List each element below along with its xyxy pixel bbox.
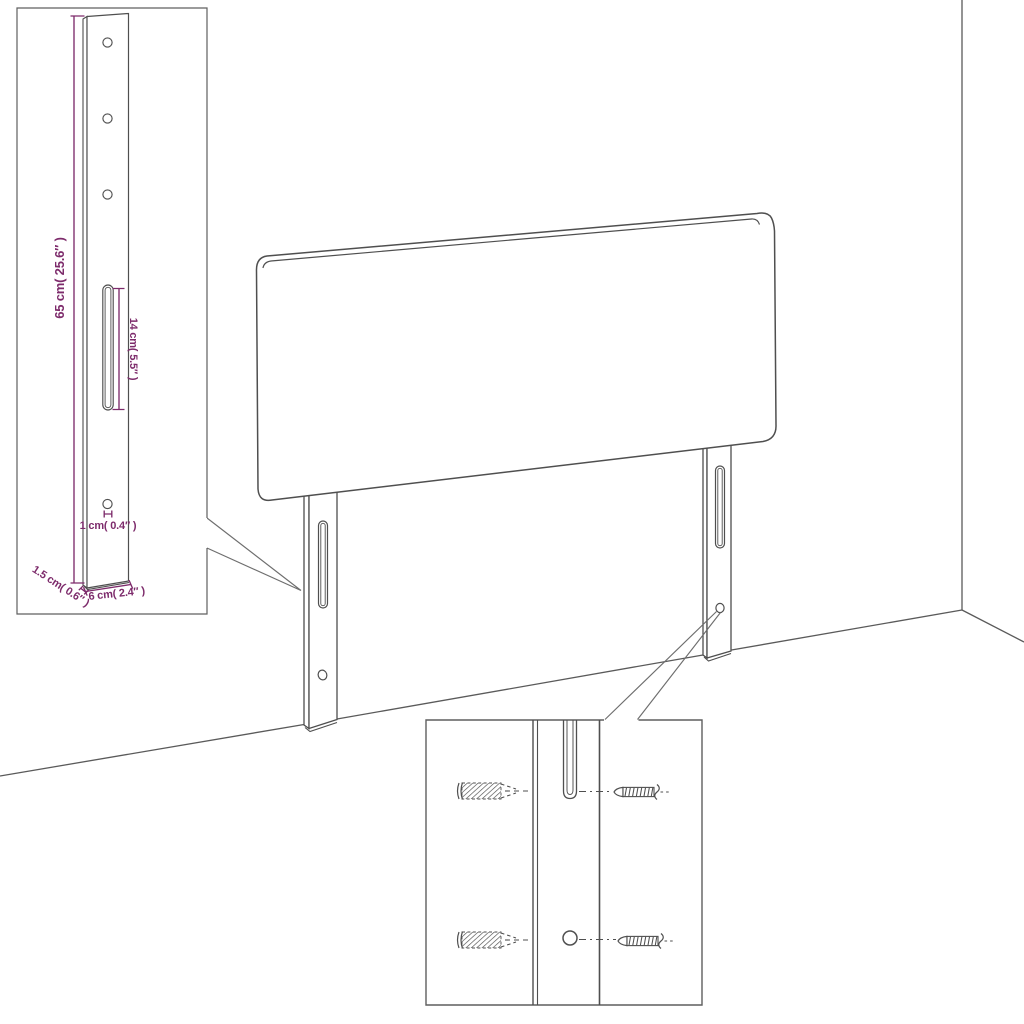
bracket-hole-4 — [103, 499, 112, 508]
right-leg-screw-hole — [716, 603, 724, 612]
dim-label-hole-diameter: 1 cm( 0.4″ ) — [80, 520, 137, 532]
callout-left-inset-to-leg — [207, 518, 301, 591]
floor-line-right — [962, 610, 1024, 642]
headboard-panel — [256, 213, 776, 500]
bracket-hole-2 — [103, 114, 112, 123]
right-leg — [703, 437, 731, 661]
bracket-hole-1 — [103, 38, 112, 47]
left-leg-slot — [319, 521, 328, 608]
dim-label-height: 65 cm( 25.6″ ) — [52, 237, 67, 318]
callout-lines — [207, 518, 721, 720]
bracket-hole-3 — [103, 190, 112, 199]
product-diagram: 65 cm( 25.6″ ) 14 cm( 5.5″ ) 1 cm( 0.4″ … — [0, 0, 1024, 1024]
left-leg — [304, 490, 337, 732]
right-leg-slot — [716, 466, 725, 548]
inset-mounting-detail — [426, 720, 702, 1005]
inset-bracket-detail: 65 cm( 25.6″ ) 14 cm( 5.5″ ) 1 cm( 0.4″ … — [17, 8, 207, 614]
dim-label-slot-length: 14 cm( 5.5″ ) — [127, 318, 139, 381]
bracket-slot — [103, 285, 113, 410]
bracket-drawing — [83, 14, 129, 590]
diagram-canvas: 65 cm( 25.6″ ) 14 cm( 5.5″ ) 1 cm( 0.4″ … — [0, 0, 1024, 1024]
